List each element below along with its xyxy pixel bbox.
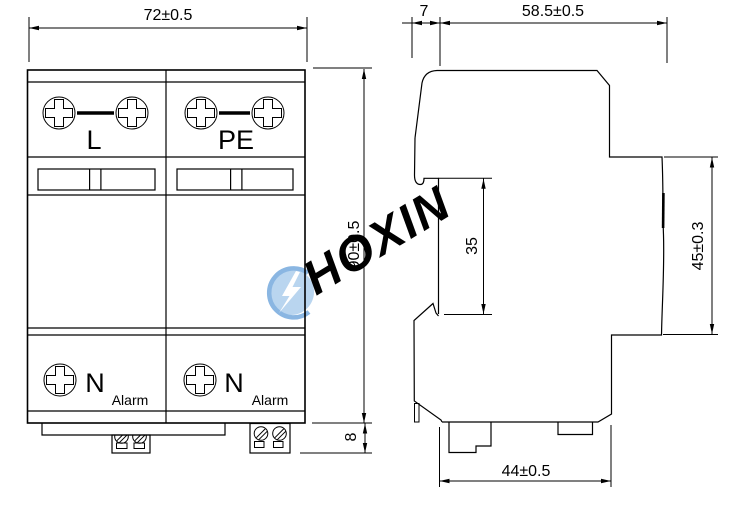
dimension-width-72: 72±0.5	[29, 7, 307, 62]
terminal-slot	[117, 443, 128, 449]
terminal-label-L: L	[86, 125, 101, 155]
dim-text-7: 7	[420, 3, 429, 20]
terminal-block-right-screws	[254, 427, 286, 441]
side-terminal-block-right	[558, 422, 593, 435]
dim-text-58: 58.5±0.5	[522, 3, 584, 20]
status-window-1	[38, 169, 155, 190]
dim-text-90: 90±0.5	[346, 220, 363, 269]
screw-terminal-N2	[184, 364, 216, 396]
dim-text-35: 35	[464, 237, 481, 255]
dimension-height-45: 45±0.3	[663, 157, 718, 335]
watermark-text: HOXIN	[294, 177, 460, 306]
dim-text-45: 45±0.3	[690, 221, 707, 270]
screw-terminal-N1	[44, 364, 76, 396]
dimension-drawing: HOXIN L PE	[0, 0, 733, 507]
dimension-depth-58: 58.5±0.5	[440, 3, 667, 63]
bottom-terminal-area	[42, 423, 290, 453]
dim-text-8: 8	[343, 432, 360, 441]
terminal-label-N2: N	[224, 368, 244, 398]
side-profile-outline	[415, 71, 664, 423]
status-window-2	[177, 169, 293, 190]
front-view: L PE N N Alarm Alarm	[28, 70, 306, 453]
dim-text-72: 72±0.5	[144, 7, 193, 24]
din-rail-clip	[414, 304, 442, 423]
terminal-slot	[274, 442, 284, 448]
dim-text-44: 44±0.5	[502, 463, 551, 480]
alarm-label-1: Alarm	[112, 392, 149, 408]
dimension-offset-7: 7	[402, 3, 440, 66]
dimension-base-8: 8	[300, 423, 372, 453]
side-terminal-block-left	[449, 422, 491, 453]
terminal-label-PE: PE	[218, 125, 254, 155]
terminal-block-left-screws	[113, 428, 149, 443]
terminal-label-N1: N	[85, 368, 105, 398]
alarm-label-2: Alarm	[252, 392, 289, 408]
clip-foot	[415, 404, 420, 423]
terminal-slot	[134, 443, 145, 449]
side-view	[414, 71, 664, 453]
terminal-slot	[255, 442, 265, 448]
